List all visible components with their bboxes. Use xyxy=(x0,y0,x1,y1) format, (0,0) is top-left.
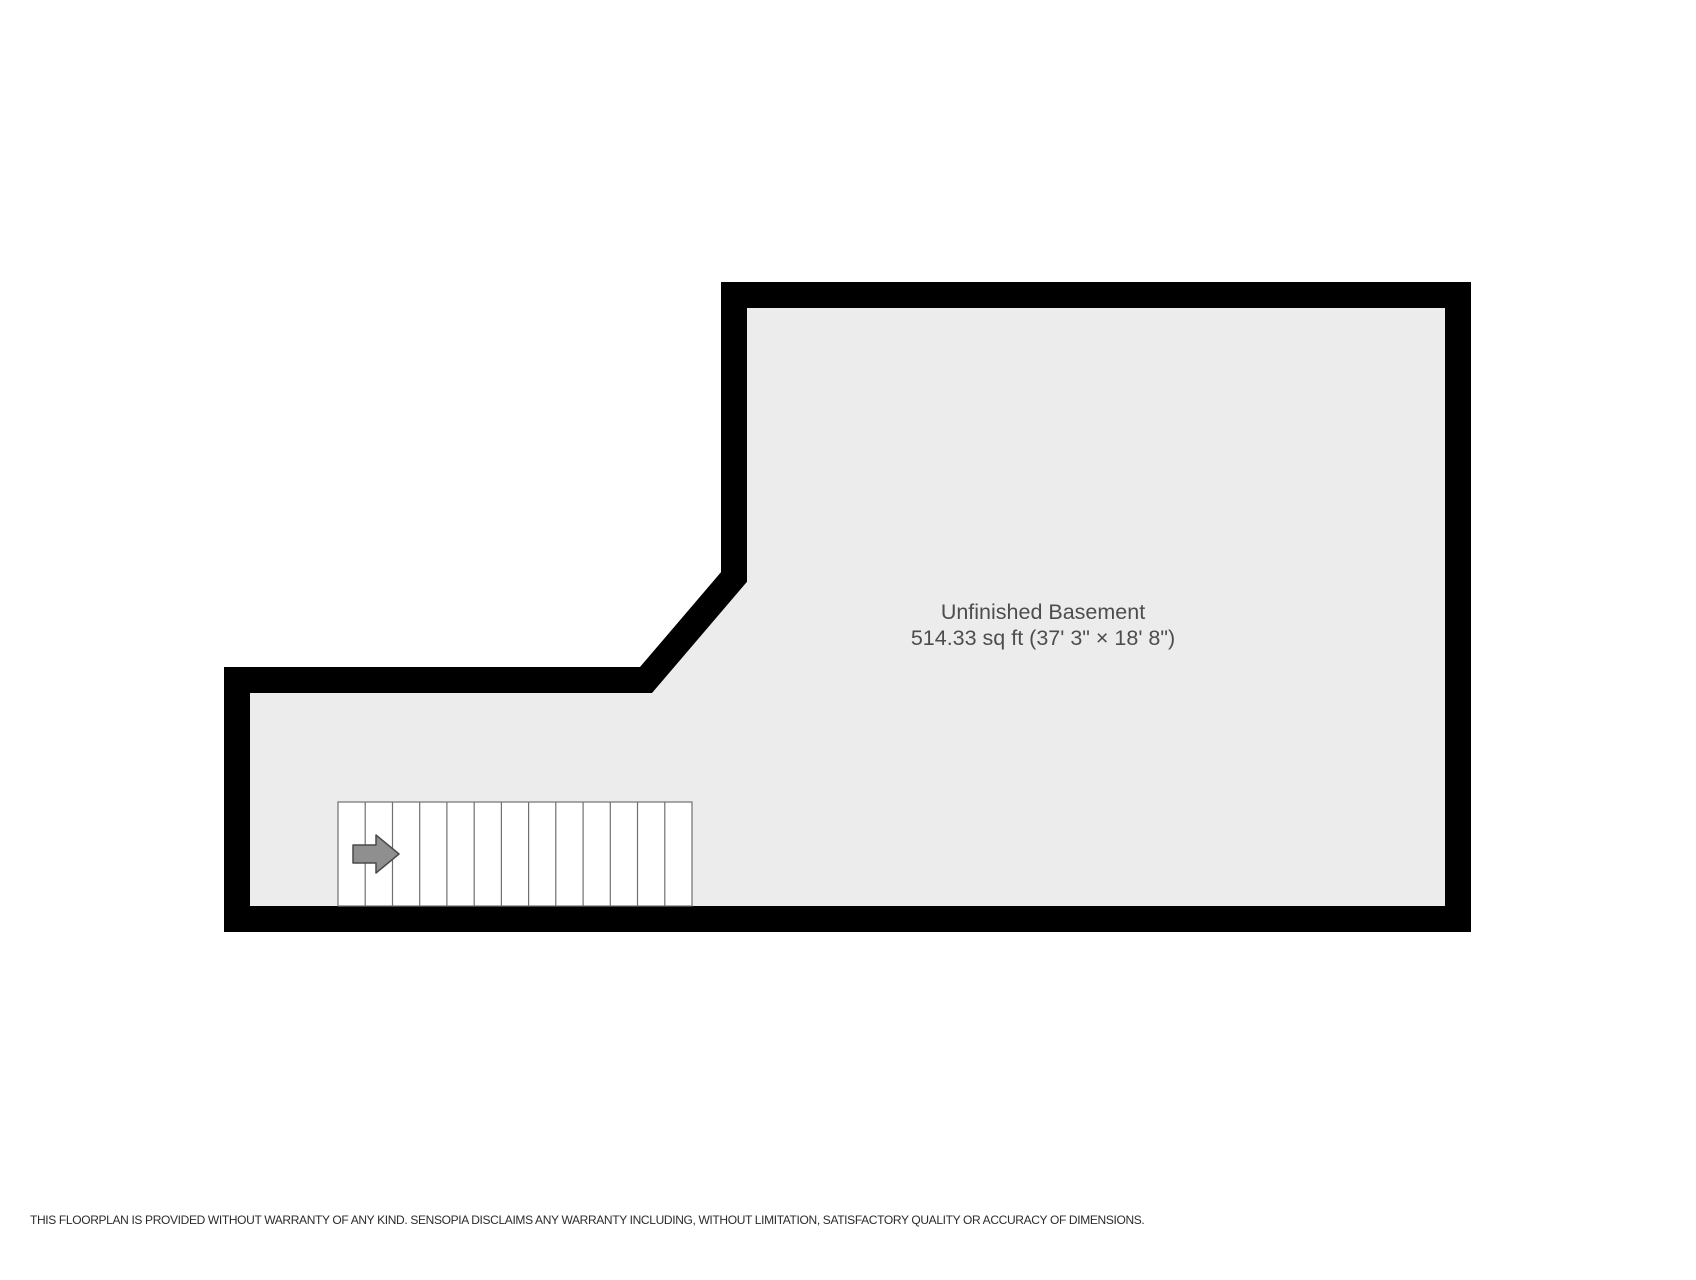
staircase xyxy=(338,802,692,906)
disclaimer-text: THIS FLOORPLAN IS PROVIDED WITHOUT WARRA… xyxy=(30,1213,1144,1227)
room-label: Unfinished Basement 514.33 sq ft (37' 3"… xyxy=(743,599,1343,651)
room-area: 514.33 sq ft (37' 3" × 18' 8") xyxy=(743,625,1343,651)
floorplan-page: Unfinished Basement 514.33 sq ft (37' 3"… xyxy=(0,0,1696,1280)
room-name: Unfinished Basement xyxy=(743,599,1343,625)
